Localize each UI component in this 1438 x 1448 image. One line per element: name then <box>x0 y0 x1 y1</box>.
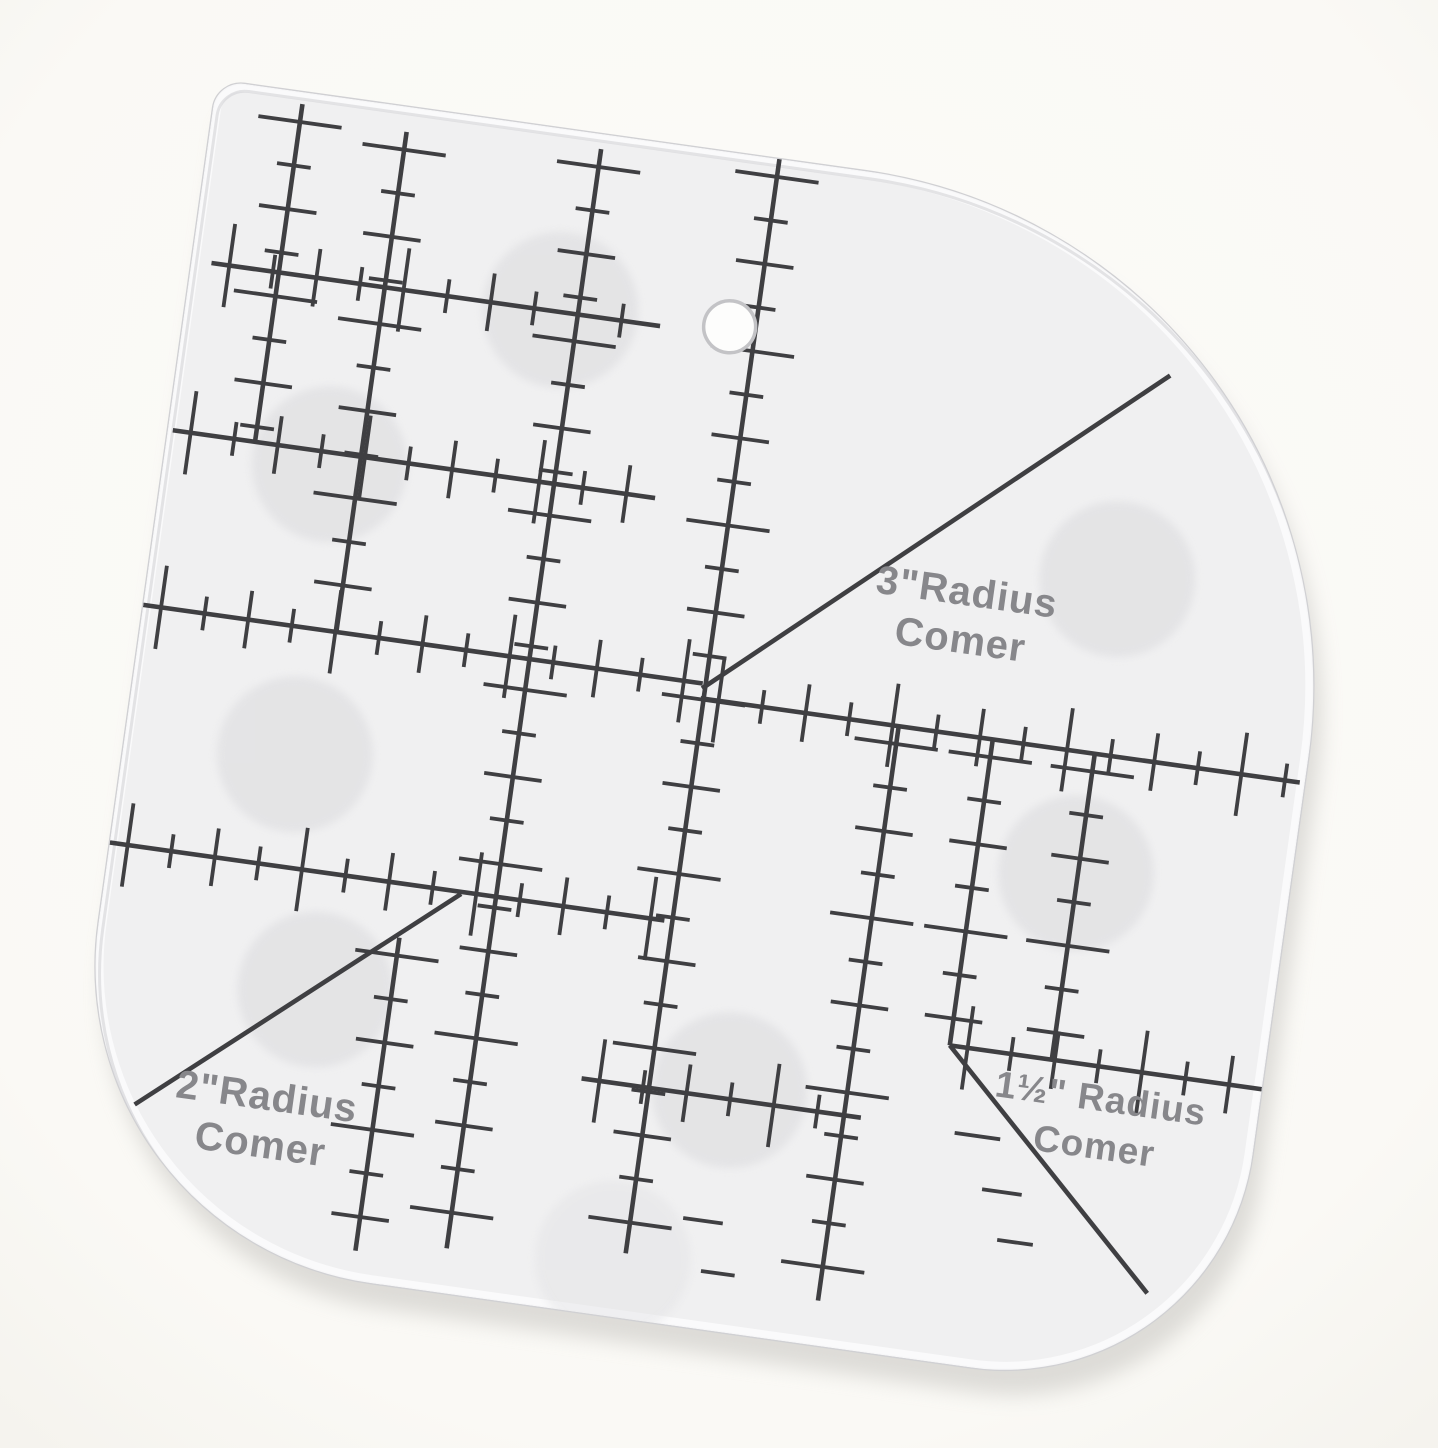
radius-corner-template-photo: 3"RadiusComer2"RadiusComer1½" RadiusCome… <box>0 0 1438 1448</box>
photo-stage: 3"RadiusComer2"RadiusComer1½" RadiusCome… <box>0 0 1438 1448</box>
